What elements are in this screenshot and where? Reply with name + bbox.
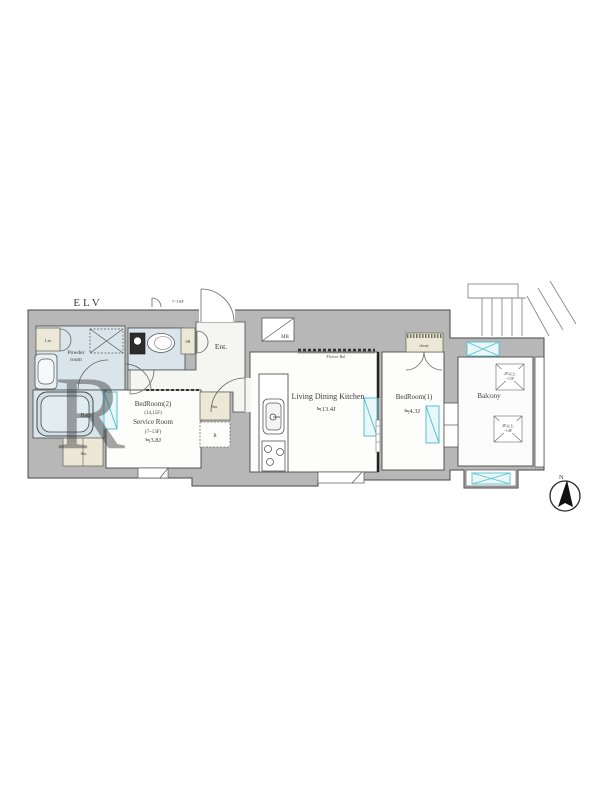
bedroom1-label-line2: ≒4.3J — [404, 408, 421, 415]
floorplan-page: R N ELV 7~10F MB Ent. SB Lin Powder room… — [0, 0, 600, 800]
ldk-sliding-door-panel — [364, 398, 377, 436]
balcony-railing — [535, 357, 544, 467]
corridor-small-door — [152, 298, 161, 307]
compass-north-label: N — [559, 474, 564, 481]
shoe-box-label: SB — [186, 339, 191, 344]
kitchen-counter — [259, 374, 288, 472]
hatch-upper-label-line1: 2F以上 — [504, 371, 516, 376]
ac-unit-symbol-bottom — [472, 473, 510, 484]
entrance-door-opening — [199, 309, 235, 322]
washbasin — [35, 354, 57, 389]
closet-label: closet — [419, 343, 429, 348]
stairs — [468, 281, 576, 336]
storage-hall-label: Sto. — [212, 404, 219, 409]
floorplan-drawing: R N ELV 7~10F MB Ent. SB Lin Powder room… — [0, 0, 600, 800]
powder-room-label-line1: Powder — [68, 350, 85, 356]
meter-box — [262, 318, 294, 341]
stair-landing — [468, 284, 518, 298]
kitchen-stove — [262, 441, 285, 471]
bedroom1-window-panel — [426, 406, 439, 443]
entrance-label: Ent. — [215, 342, 227, 351]
hatch-lower-label-line2: ~14F — [504, 429, 512, 433]
storage-bath-label: Sto. — [81, 451, 88, 456]
bedroom2-label-line4: (7~13F) — [145, 430, 162, 435]
hatch-upper-label-line2: ~15F — [506, 377, 514, 381]
linen-label: Lin — [45, 338, 52, 343]
kitchen-sink — [263, 399, 284, 434]
bedroom2-label-line2: (14,15F) — [144, 411, 162, 416]
flower-balcony-label: Flower Bal — [327, 355, 346, 359]
elevator-label: ELV — [73, 297, 102, 309]
ac-unit-symbol-top — [467, 342, 499, 356]
ldk-label-line1: Living Dining Kitchen — [292, 392, 365, 401]
ldk-bottom-window — [318, 472, 364, 483]
meter-box-label: MB — [281, 335, 289, 340]
powder-room-label-line2: room — [70, 357, 82, 363]
bath-label: Bath — [80, 413, 91, 419]
bedroom2-label-line1: BedRoom(2) — [135, 400, 172, 408]
bedroom1-label-line1: BedRoom(1) — [396, 393, 433, 401]
balcony-label: Balcony — [477, 392, 501, 400]
ldk-label-line2: ≒13.4J — [316, 406, 336, 413]
bedroom2-label-line3: Service Room — [133, 418, 173, 426]
bedroom2-label-line5: ≒3.8J — [145, 437, 162, 444]
bedroom2-bottom-window — [138, 468, 168, 478]
compass: N — [550, 474, 580, 511]
hatch-lower-label-line1: 4F以上 — [502, 423, 514, 428]
corridor-door-floors-label: 7~10F — [172, 299, 184, 304]
